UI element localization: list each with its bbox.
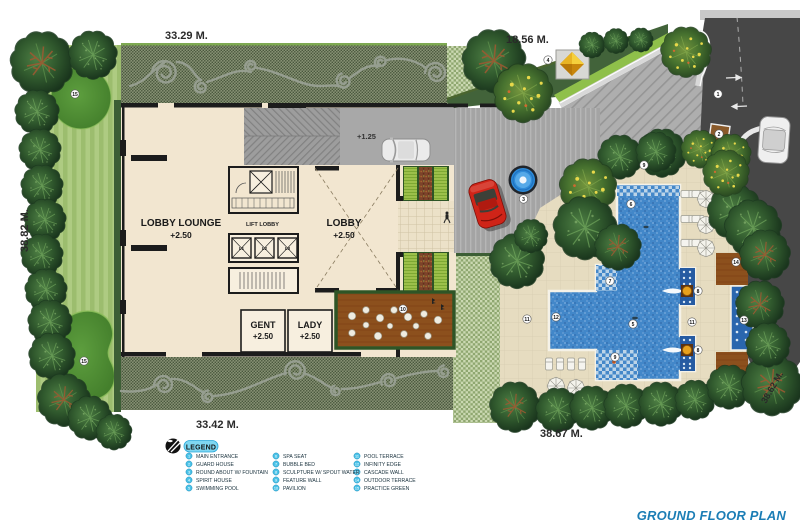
- svg-text:SPIRIT HOUSE: SPIRIT HOUSE: [196, 478, 232, 484]
- svg-text:2: 2: [718, 132, 721, 138]
- svg-text:6: 6: [630, 202, 633, 208]
- svg-text:2: 2: [188, 462, 190, 466]
- svg-text:3: 3: [188, 470, 190, 474]
- svg-text:11: 11: [524, 317, 530, 323]
- svg-text:15: 15: [81, 359, 87, 365]
- svg-text:L2: L2: [262, 246, 268, 251]
- svg-text:14: 14: [355, 478, 359, 482]
- svg-text:33.42 M.: 33.42 M.: [196, 419, 239, 431]
- svg-text:1: 1: [717, 92, 720, 98]
- svg-text:SPA SEAT: SPA SEAT: [283, 454, 307, 460]
- svg-text:+2.50: +2.50: [170, 230, 192, 240]
- svg-text:15: 15: [72, 92, 78, 98]
- svg-text:CASCADE WALL: CASCADE WALL: [364, 470, 404, 476]
- svg-text:+1.25: +1.25: [357, 132, 376, 141]
- svg-text:L1: L1: [239, 246, 245, 251]
- svg-text:11: 11: [689, 320, 695, 326]
- svg-text:GUARD HOUSE: GUARD HOUSE: [196, 462, 235, 468]
- svg-text:LOBBY LOUNGE: LOBBY LOUNGE: [141, 218, 222, 229]
- svg-text:10: 10: [400, 307, 406, 313]
- svg-text:PAVILION: PAVILION: [283, 486, 306, 492]
- svg-text:L3: L3: [285, 246, 291, 251]
- svg-text:9: 9: [275, 478, 277, 482]
- svg-text:12: 12: [355, 462, 359, 466]
- svg-text:ROUND ABOUT W/ FOUNTAIN: ROUND ABOUT W/ FOUNTAIN: [196, 470, 268, 476]
- svg-text:6: 6: [275, 454, 277, 458]
- svg-text:BUBBLE BED: BUBBLE BED: [283, 462, 315, 468]
- svg-text:MAIN ENTRANCE: MAIN ENTRANCE: [196, 454, 239, 460]
- svg-text:4: 4: [547, 58, 550, 64]
- svg-text:8: 8: [275, 470, 277, 474]
- svg-text:1: 1: [188, 454, 190, 458]
- svg-text:PRACTICE GREEN: PRACTICE GREEN: [364, 486, 410, 492]
- svg-text:POOL TERRACE: POOL TERRACE: [364, 454, 404, 460]
- svg-text:SCULPTURE W/ SPOUT WATER: SCULPTURE W/ SPOUT WATER: [283, 470, 360, 476]
- svg-text:38.82 M.: 38.82 M.: [19, 209, 31, 252]
- svg-text:5: 5: [632, 322, 635, 328]
- svg-text:5: 5: [188, 486, 190, 490]
- svg-text:LEGEND: LEGEND: [186, 444, 216, 451]
- svg-text:+2.50: +2.50: [253, 332, 274, 341]
- svg-text:18.56 M.: 18.56 M.: [506, 34, 549, 46]
- svg-text:7: 7: [275, 462, 277, 466]
- svg-text:9: 9: [614, 355, 617, 361]
- svg-text:15: 15: [355, 486, 359, 490]
- svg-text:14: 14: [733, 260, 739, 266]
- svg-text:LIFT LOBBY: LIFT LOBBY: [246, 222, 279, 228]
- svg-text:9: 9: [643, 163, 646, 169]
- svg-text:GROUND FLOOR PLAN: GROUND FLOOR PLAN: [637, 508, 787, 523]
- svg-text:OUTDOOR TERRACE: OUTDOOR TERRACE: [364, 478, 416, 484]
- svg-text:LOBBY: LOBBY: [327, 218, 362, 229]
- svg-text:12: 12: [553, 315, 559, 321]
- svg-text:FEATURE WALL: FEATURE WALL: [283, 478, 322, 484]
- svg-text:SWIMMING POOL: SWIMMING POOL: [196, 486, 239, 492]
- svg-text:10: 10: [274, 486, 278, 490]
- svg-text:LADY: LADY: [298, 320, 323, 330]
- svg-text:GENT: GENT: [250, 320, 276, 330]
- svg-text:8: 8: [697, 289, 700, 295]
- svg-text:33.29 M.: 33.29 M.: [165, 30, 208, 42]
- svg-text:+2.50: +2.50: [333, 230, 355, 240]
- svg-text:8: 8: [697, 348, 700, 354]
- svg-text:7: 7: [609, 279, 612, 285]
- svg-text:+2.50: +2.50: [300, 332, 321, 341]
- svg-text:13: 13: [741, 318, 747, 324]
- svg-text:38.67 M.: 38.67 M.: [540, 428, 583, 440]
- svg-text:4: 4: [188, 478, 190, 482]
- svg-text:INFINITY EDGE: INFINITY EDGE: [364, 462, 402, 468]
- svg-text:3: 3: [522, 197, 525, 203]
- svg-text:11: 11: [355, 454, 359, 458]
